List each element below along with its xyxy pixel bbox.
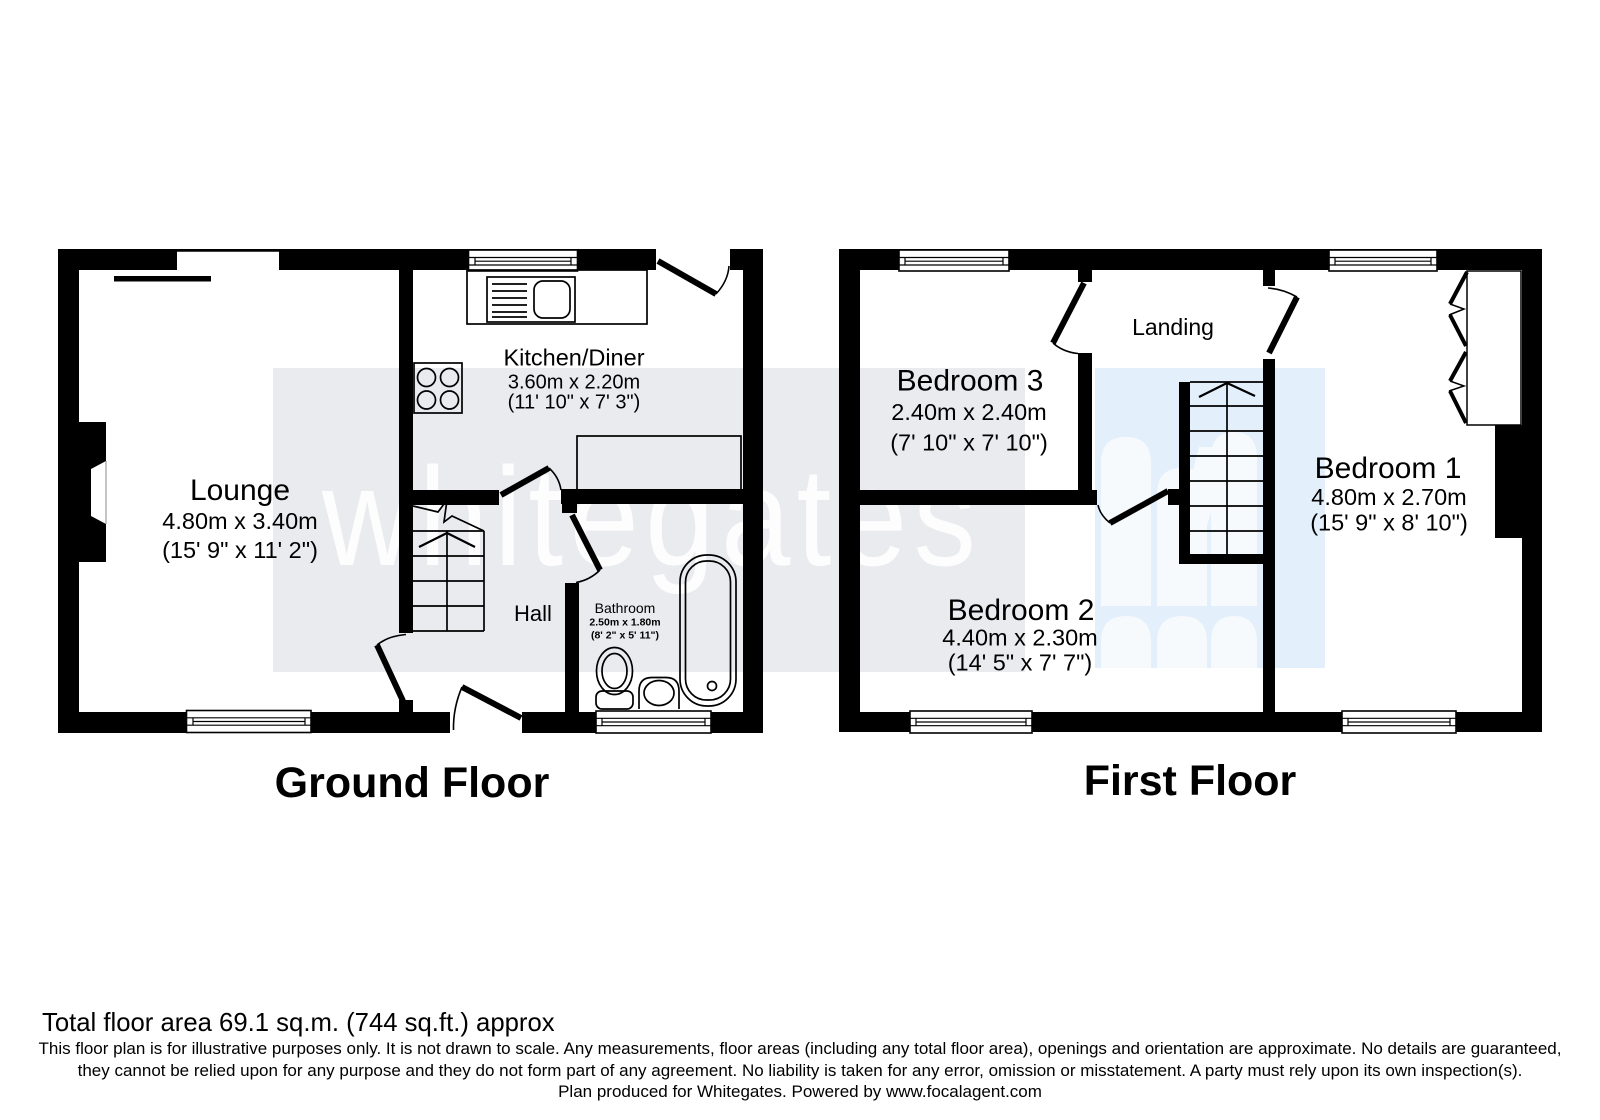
svg-text:4.40m x 2.30m: 4.40m x 2.30m (942, 625, 1097, 651)
svg-text:Lounge: Lounge (190, 474, 290, 507)
svg-text:4.80m x 3.40m: 4.80m x 3.40m (162, 508, 317, 534)
svg-text:(14' 5" x 7' 7"): (14' 5" x 7' 7") (948, 650, 1093, 676)
svg-text:(11' 10" x 7' 3"): (11' 10" x 7' 3") (508, 392, 641, 414)
svg-text:Bedroom 3: Bedroom 3 (897, 365, 1044, 398)
svg-text:3.60m x 2.20m: 3.60m x 2.20m (508, 372, 640, 394)
svg-text:First Floor: First Floor (1084, 757, 1297, 805)
svg-text:Total floor area 69.1 sq.m. (7: Total floor area 69.1 sq.m. (744 sq.ft.)… (42, 1009, 555, 1037)
svg-text:they cannot be relied upon for: they cannot be relied upon for any purpo… (78, 1061, 1523, 1080)
svg-text:Hall: Hall (514, 601, 552, 626)
svg-text:4.80m x 2.70m: 4.80m x 2.70m (1311, 484, 1466, 510)
svg-text:Ground Floor: Ground Floor (275, 759, 550, 807)
svg-text:2.50m x 1.80m: 2.50m x 1.80m (589, 617, 660, 629)
svg-text:(7' 10" x 7' 10"): (7' 10" x 7' 10") (890, 430, 1048, 456)
svg-text:Plan produced for Whitegates.: Plan produced for Whitegates. Powered by… (558, 1082, 1042, 1101)
svg-text:(15' 9" x 11' 2"): (15' 9" x 11' 2") (162, 537, 318, 563)
svg-text:Bedroom 1: Bedroom 1 (1315, 452, 1462, 485)
svg-text:whitegates: whitegates (321, 439, 982, 595)
svg-text:(8' 2" x 5' 11"): (8' 2" x 5' 11") (591, 630, 659, 642)
svg-text:Kitchen/Diner: Kitchen/Diner (503, 345, 644, 371)
svg-text:Bathroom: Bathroom (595, 600, 656, 616)
svg-text:Bedroom 2: Bedroom 2 (948, 594, 1095, 627)
svg-text:This floor plan is for illustr: This floor plan is for illustrative purp… (39, 1039, 1562, 1058)
svg-text:2.40m x 2.40m: 2.40m x 2.40m (891, 399, 1046, 425)
svg-text:Landing: Landing (1132, 314, 1214, 340)
svg-text:(15' 9" x 8' 10"): (15' 9" x 8' 10") (1310, 510, 1468, 536)
